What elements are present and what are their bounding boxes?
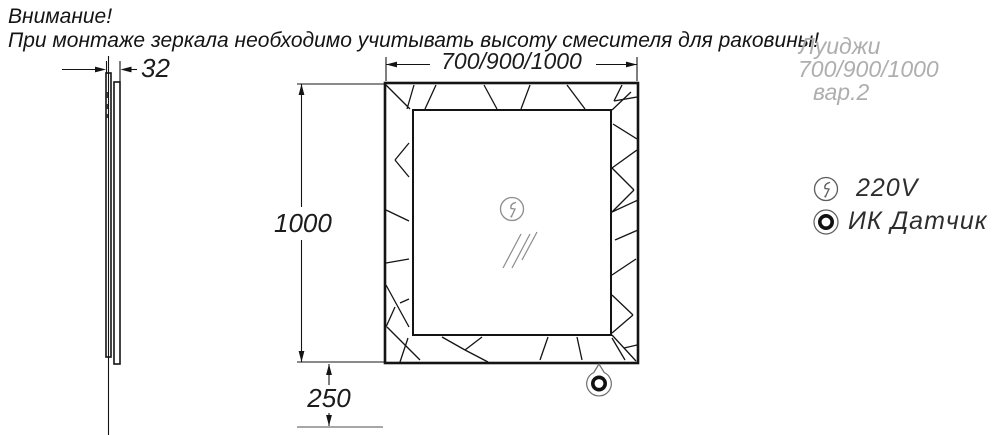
mirror-outer-frame — [385, 83, 638, 363]
height-dimension-label: 1000 — [274, 209, 332, 238]
power-circle-icon — [815, 178, 838, 201]
side-view — [62, 56, 137, 435]
back-panel-profile — [114, 82, 120, 364]
mirror-glare-lines — [503, 232, 537, 268]
title-variant: вар.2 — [813, 80, 869, 105]
legend-icons — [814, 178, 838, 235]
ir-sensor-icon — [814, 210, 838, 234]
frame-crackle-pattern — [386, 85, 638, 362]
legend-power-label: 220V — [856, 175, 918, 203]
power-circle-icon — [501, 198, 524, 221]
dimension-lines — [297, 57, 637, 427]
ir-sensor-icon — [587, 364, 612, 396]
warning-line-1: Внимание! — [8, 5, 112, 28]
mirror-mounting-diagram: Внимание! При монтаже зеркала необходимо… — [0, 0, 1000, 435]
legend-sensor-label: ИК Датчик — [848, 208, 988, 236]
bottom-offset-label: 250 — [301, 384, 357, 413]
front-view — [385, 83, 638, 396]
depth-dimension — [62, 61, 137, 82]
width-dimension-label: 700/900/1000 — [385, 49, 638, 74]
depth-dimension-label: 32 — [141, 54, 170, 83]
mirror-inner-edge — [413, 110, 611, 335]
